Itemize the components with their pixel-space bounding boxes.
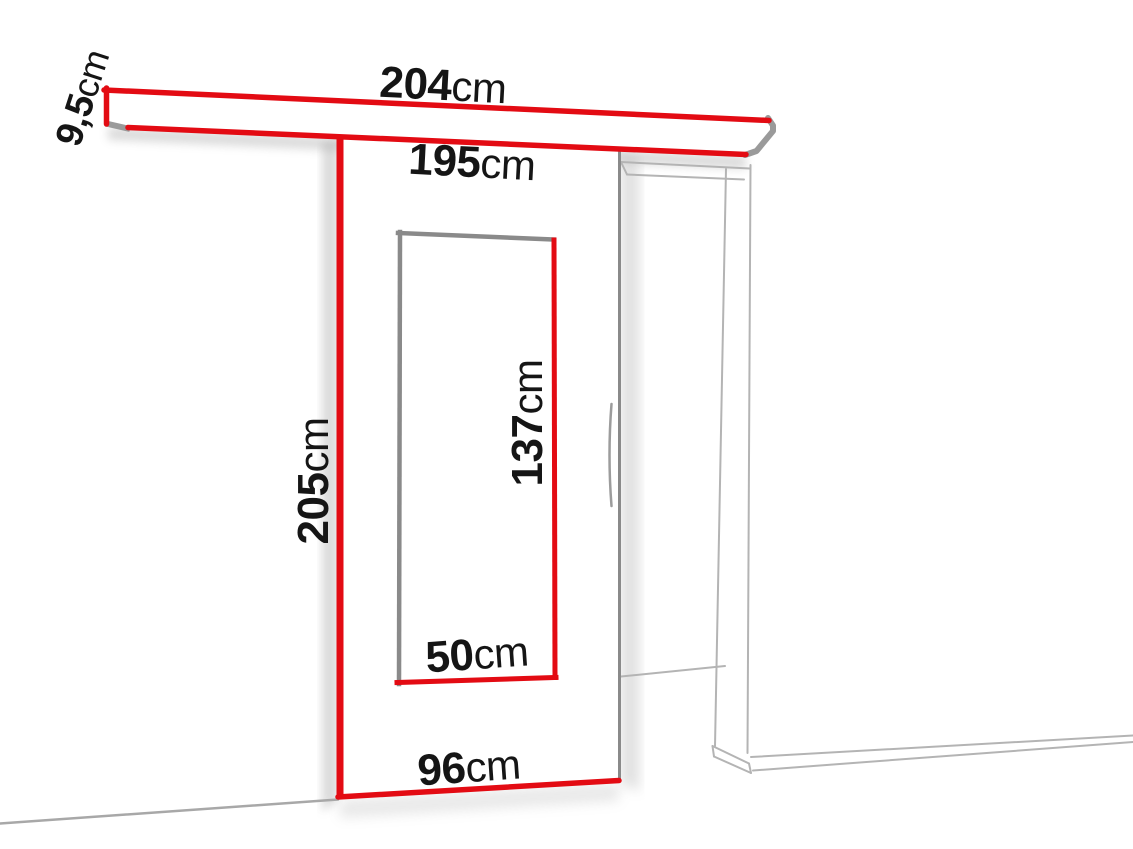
glass-edge-left	[399, 232, 400, 684]
glass-edge-right	[554, 240, 555, 678]
dim-label-door-width: 96cm	[416, 742, 522, 793]
diagram-canvas	[0, 0, 1133, 849]
door-right-shadow	[621, 152, 639, 792]
floor-lines	[0, 800, 338, 824]
door-frame	[621, 162, 1133, 773]
dim-value: 204	[378, 58, 452, 111]
door-dimension-diagram: 204cm 9,5cm 195cm 205cm 137cm 50cm 96cm	[0, 0, 1133, 849]
dim-unit: cm	[464, 740, 522, 791]
dim-value: 195	[407, 135, 481, 188]
frame-jamb-right	[748, 165, 751, 753]
dim-label-door-height: 205cm	[292, 418, 336, 545]
dim-unit: cm	[504, 360, 551, 415]
door-panel	[337, 136, 621, 799]
dim-value: 137	[503, 415, 552, 487]
frame-foot-bottom	[714, 757, 751, 774]
dim-value: 50	[424, 630, 475, 682]
dim-unit: cm	[479, 139, 536, 189]
dim-label-glass-height: 137cm	[506, 360, 550, 487]
dim-label-glass-width: 50cm	[424, 629, 530, 680]
frame-foot-top	[713, 746, 750, 764]
dim-unit: cm	[450, 62, 507, 112]
dim-value: 96	[416, 743, 467, 795]
dim-value: 205	[289, 473, 338, 545]
dim-label-rail-length: 204cm	[378, 61, 507, 112]
frame-jamb-left	[715, 169, 726, 746]
dim-unit: cm	[472, 627, 530, 678]
dim-label-clear-width: 195cm	[407, 138, 536, 189]
dim-unit: cm	[290, 418, 337, 473]
floor-line-left	[0, 800, 338, 824]
